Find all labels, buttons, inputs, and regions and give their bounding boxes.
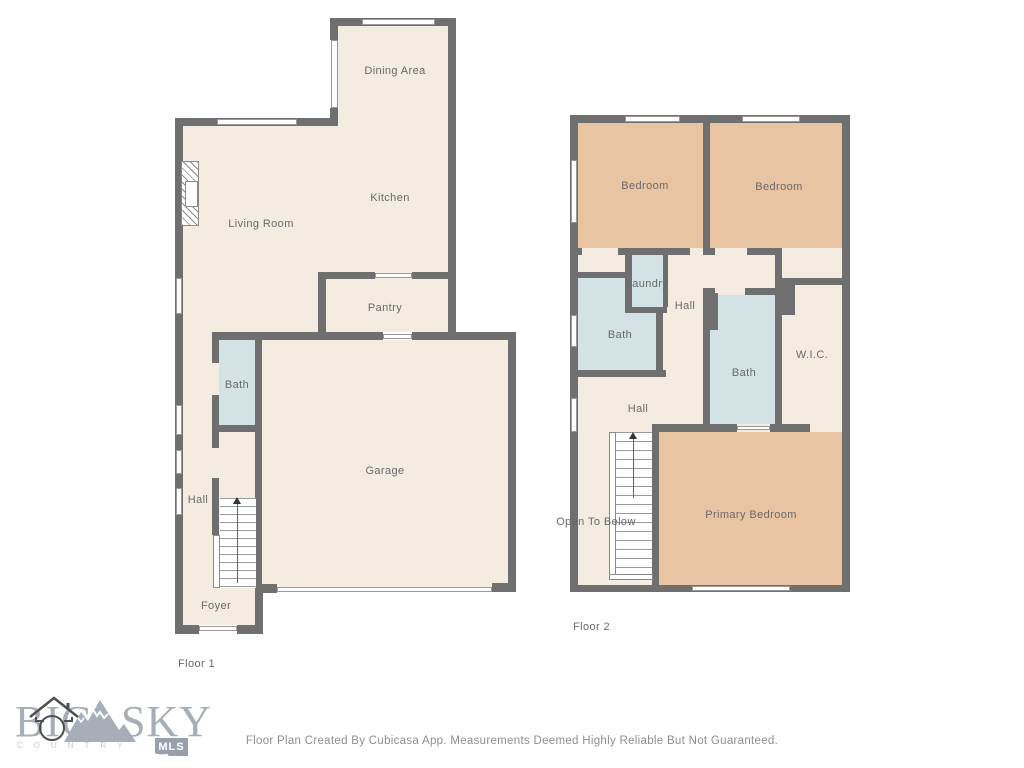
front-door-opening xyxy=(199,626,237,631)
door-opening xyxy=(737,426,770,430)
room-label-hall1: Hall xyxy=(188,494,209,506)
wall-segment xyxy=(703,248,715,255)
wall-segment xyxy=(655,424,737,432)
window xyxy=(217,119,297,125)
window xyxy=(571,160,577,223)
window xyxy=(176,450,182,474)
wall-segment xyxy=(703,293,718,330)
wall-segment xyxy=(262,584,277,593)
room-label-bath-left: Bath xyxy=(608,329,632,341)
window xyxy=(176,278,182,314)
wall-segment xyxy=(212,332,383,340)
window xyxy=(362,19,435,25)
wall-segment xyxy=(330,18,338,40)
window xyxy=(742,116,800,122)
stair-up-arrow-icon xyxy=(629,432,637,439)
wall-segment xyxy=(747,248,782,255)
window xyxy=(176,405,182,435)
room-label-living-room: Living Room xyxy=(228,218,294,230)
room-label-bedroom-right: Bedroom xyxy=(755,181,802,193)
wall-segment xyxy=(775,315,782,424)
garage-door xyxy=(277,587,492,592)
room-label-laundry: Laundry xyxy=(626,278,669,290)
wall-segment xyxy=(842,115,850,592)
wall-segment xyxy=(703,330,710,424)
floor2-title: Floor 2 xyxy=(573,621,610,633)
window xyxy=(571,315,577,347)
bath-center-floor xyxy=(710,295,775,424)
room-label-dining-area: Dining Area xyxy=(364,65,425,77)
wall-segment xyxy=(775,283,795,315)
wall-segment xyxy=(212,432,219,448)
wall-segment xyxy=(578,272,625,278)
wall-segment xyxy=(570,115,850,123)
room-label-bath1: Bath xyxy=(225,379,249,391)
wall-segment xyxy=(318,272,375,279)
wall-segment xyxy=(570,370,666,377)
garage-floor xyxy=(262,340,508,588)
room-label-hall-lower: Hall xyxy=(628,403,649,415)
stair-direction-line xyxy=(633,438,634,498)
wall-segment xyxy=(448,18,456,337)
stair-rail xyxy=(609,574,653,580)
wall-segment xyxy=(492,583,516,592)
stair-direction-line xyxy=(237,503,238,583)
wall-segment xyxy=(656,313,663,370)
window xyxy=(571,398,577,432)
floor-plan-image: Dining Area Kitchen Living Room Pantry B… xyxy=(0,0,1024,768)
room-label-garage: Garage xyxy=(365,465,404,477)
stair-up-arrow-icon xyxy=(233,497,241,504)
room-label-bedroom-left: Bedroom xyxy=(621,180,668,192)
stair-rail xyxy=(609,432,616,578)
wall-segment xyxy=(770,424,810,432)
wall-segment xyxy=(255,592,263,634)
window xyxy=(692,586,790,591)
wall-segment xyxy=(412,272,448,279)
stair-rail xyxy=(213,535,220,588)
wall-segment xyxy=(212,425,262,432)
room-label-wic: W.I.C. xyxy=(796,349,828,361)
disclaimer-text: Floor Plan Created By Cubicasa App. Meas… xyxy=(0,735,1024,747)
door-opening xyxy=(383,334,412,339)
floor1-title: Floor 1 xyxy=(178,658,215,670)
wall-segment xyxy=(782,278,843,285)
room-label-open-to-below: Open To Below xyxy=(556,516,636,528)
room-label-kitchen: Kitchen xyxy=(370,192,410,204)
window xyxy=(176,488,182,515)
door-opening xyxy=(375,273,412,278)
room-label-foyer: Foyer xyxy=(201,600,231,612)
room-label-bath-center: Bath xyxy=(732,367,756,379)
room-label-primary-bedroom: Primary Bedroom xyxy=(705,509,797,521)
wall-segment xyxy=(175,625,199,634)
wall-segment xyxy=(652,424,659,592)
wall-segment xyxy=(212,478,219,535)
wall-segment xyxy=(412,332,516,340)
wall-segment xyxy=(703,123,710,248)
room-label-pantry: Pantry xyxy=(368,302,402,314)
wall-segment xyxy=(775,255,782,283)
fireplace-box xyxy=(185,181,198,207)
bath-left-floor xyxy=(578,278,663,370)
window xyxy=(331,40,338,108)
wall-segment xyxy=(508,332,516,592)
wall-segment xyxy=(255,340,262,592)
stairs xyxy=(616,432,652,576)
room-label-hall-upper: Hall xyxy=(675,300,696,312)
stairs xyxy=(220,498,256,588)
wall-segment xyxy=(318,272,326,340)
wall-segment xyxy=(212,340,219,363)
wall-segment xyxy=(570,248,582,255)
window xyxy=(625,116,680,122)
